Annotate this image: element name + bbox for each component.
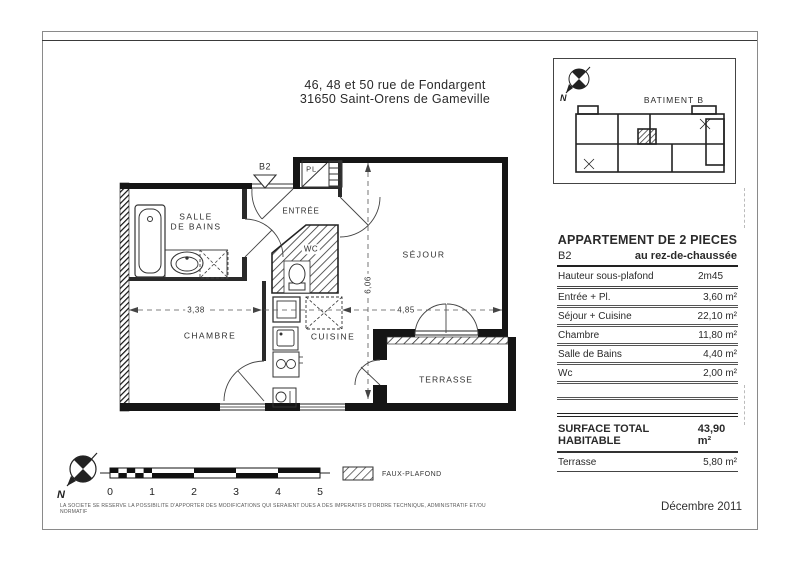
total-value: 43,90 m²	[698, 423, 737, 447]
scale-bar-drawing: N 0 1 2 3 4 5	[55, 450, 355, 508]
dim-sejour-width: 4,85	[395, 306, 417, 315]
terrace-value: 5,80 m²	[703, 457, 737, 468]
row-label: Chambre	[558, 330, 599, 341]
window	[220, 403, 265, 411]
row-value: 2,00 m²	[703, 368, 737, 379]
document-date: Décembre 2011	[595, 501, 742, 513]
scale-tick: 0	[107, 486, 113, 498]
scale-tick: 2	[191, 486, 197, 498]
legend-label: FAUX-PLAFOND	[382, 471, 442, 478]
scale-bar-area: N 0 1 2 3 4 5	[55, 450, 355, 508]
room-label-salle-de-bains: SALLE DE BAINS	[171, 213, 222, 232]
scale-bar	[100, 468, 330, 478]
disclaimer-text: LA SOCIETE SE RESERVE LA POSSIBILITE D'A…	[60, 503, 490, 515]
table-row: Entrée + Pl. 3,60 m²	[557, 289, 738, 308]
row-value: 11,80 m²	[698, 330, 737, 341]
fridge	[273, 297, 300, 322]
table-row: Séjour + Cuisine 22,10 m²	[557, 308, 738, 327]
table-title: APPARTEMENT DE 2 PIECES	[557, 233, 738, 249]
kitchen-appliance-slot	[306, 297, 342, 329]
row-label: Entrée + Pl.	[558, 292, 611, 303]
table-row: Wc 2,00 m²	[557, 365, 738, 384]
table-row: Salle de Bains 4,40 m²	[557, 346, 738, 365]
dim-depth: 6,06	[364, 274, 373, 296]
unit-id: B2	[558, 250, 571, 262]
table-row-total: SURFACE TOTAL HABITABLE 43,90 m²	[557, 417, 738, 453]
scale-tick: 5	[317, 486, 323, 498]
row-value: 4,40 m²	[703, 349, 737, 360]
legend-faux-plafond: FAUX-PLAFOND	[342, 465, 442, 483]
row-value: 2m45	[698, 271, 723, 282]
apartment-info-table: APPARTEMENT DE 2 PIECES B2 au rez-de-cha…	[557, 233, 738, 472]
kitchen-sink	[273, 327, 298, 350]
dim-chambre-width: 3,38	[185, 306, 207, 315]
chambre-door	[224, 361, 264, 401]
fold-mark	[744, 385, 745, 425]
room-label-placard: PL.	[306, 164, 320, 174]
wc-zone	[272, 225, 338, 293]
row-label: Salle de Bains	[558, 349, 622, 360]
row-value: 3,60 m²	[703, 292, 737, 303]
entry-marker-triangle	[254, 175, 276, 188]
table-subheader: B2 au rez-de-chaussée	[557, 249, 738, 267]
scanned-floorplan-page: { "title": { "line1": "46, 48 et 50 rue …	[0, 0, 799, 565]
table-empty-row	[557, 384, 738, 400]
kitchen-units	[273, 297, 342, 407]
address-title: 46, 48 et 50 rue de Fondargent 31650 Sai…	[230, 78, 560, 106]
toilet	[284, 261, 310, 293]
scale-tick: 4	[275, 486, 281, 498]
address-line-1: 46, 48 et 50 rue de Fondargent	[230, 78, 560, 92]
key-plan-box: BATIMENT B N	[553, 58, 736, 184]
hatch-swatch-icon	[342, 465, 376, 483]
floor-plan: SALLE DE BAINS ENTRÉE PL. WC SÉJOUR CHAM…	[110, 145, 530, 440]
table-row: Chambre 11,80 m²	[557, 327, 738, 346]
scale-tick-labels: 0 1 2 3 4 5	[107, 486, 323, 498]
room-label-terrasse: TERRASSE	[419, 375, 473, 385]
key-plan-building	[576, 106, 724, 172]
row-value: 22,10 m²	[698, 311, 737, 322]
terrace-label: Terrasse	[558, 457, 596, 468]
table-row-terrace: Terrasse 5,80 m²	[557, 453, 738, 472]
key-plan-title: BATIMENT B	[614, 95, 734, 105]
table-row-height: Hauteur sous-plafond 2m45	[557, 267, 738, 289]
room-label-chambre: CHAMBRE	[184, 331, 236, 341]
scale-tick: 1	[149, 486, 155, 498]
room-label-cuisine: CUISINE	[311, 332, 355, 342]
total-label: SURFACE TOTAL HABITABLE	[558, 423, 698, 447]
cooktop	[273, 352, 303, 377]
north-compass-icon: N	[560, 67, 590, 103]
svg-text:N: N	[560, 93, 567, 103]
key-plan-drawing: N	[554, 59, 735, 183]
row-label: Wc	[558, 368, 572, 379]
table-empty-row	[557, 400, 738, 417]
bath-appliance-slot	[200, 250, 228, 278]
north-compass-icon: N	[57, 453, 97, 501]
room-label-entree: ENTRÉE	[282, 206, 319, 216]
french-door	[415, 304, 478, 335]
window	[300, 403, 345, 411]
frame-top-rule	[42, 40, 757, 41]
unit-marker-b2: B2	[259, 162, 271, 172]
bathroom-sink	[165, 250, 227, 278]
floor-level: au rez-de-chaussée	[635, 250, 737, 262]
svg-text:N: N	[57, 489, 66, 501]
terrace-kitchen-door	[355, 360, 380, 385]
scale-tick: 3	[233, 486, 239, 498]
room-label-sejour: SÉJOUR	[403, 250, 446, 260]
bathtub	[135, 205, 165, 277]
floor-plan-drawing	[110, 145, 530, 440]
fold-mark	[744, 188, 745, 228]
room-label-wc: WC	[302, 244, 320, 254]
sejour-door	[340, 197, 380, 237]
row-label: Hauteur sous-plafond	[558, 271, 654, 282]
address-line-2: 31650 Saint-Orens de Gameville	[230, 92, 560, 106]
row-label: Séjour + Cuisine	[558, 311, 632, 322]
